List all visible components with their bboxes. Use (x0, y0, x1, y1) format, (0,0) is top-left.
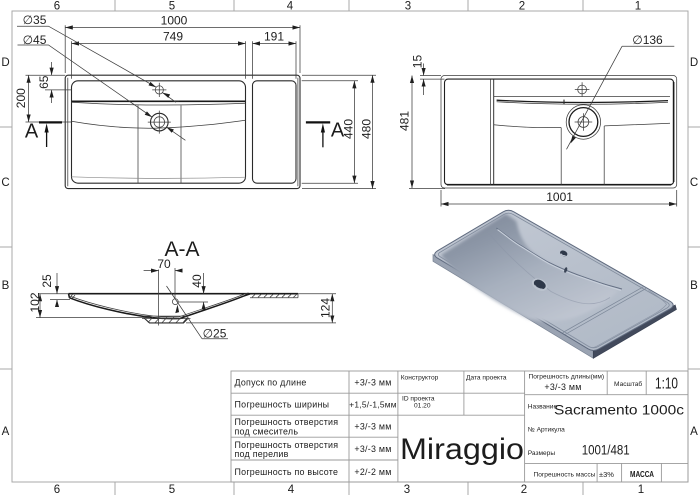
svg-text:Масштаб: Масштаб (614, 380, 642, 388)
svg-text:B: B (690, 280, 698, 292)
svg-text:Допуск по длине: Допуск по длине (235, 378, 307, 388)
svg-text:200: 200 (14, 88, 28, 108)
svg-text:1:10: 1:10 (655, 376, 678, 393)
svg-text:D: D (690, 57, 698, 69)
svg-text:65: 65 (37, 75, 51, 89)
svg-text:70: 70 (157, 257, 171, 271)
svg-text:A: A (2, 426, 10, 438)
svg-text:Погрешность ширины: Погрешность ширины (235, 400, 330, 410)
svg-text:6: 6 (54, 484, 60, 495)
svg-text:5: 5 (169, 484, 175, 495)
svg-text:Miraggio: Miraggio (400, 433, 524, 466)
svg-text:3: 3 (404, 484, 410, 495)
svg-text:C: C (1, 177, 9, 189)
svg-text:C: C (690, 177, 698, 189)
svg-text:ID проекта: ID проекта (402, 396, 435, 403)
svg-text:1: 1 (635, 1, 641, 13)
svg-text:40: 40 (190, 274, 204, 288)
svg-text:1001/481: 1001/481 (582, 443, 630, 458)
svg-text:Погрешность длины(мм): Погрешность длины(мм) (529, 374, 605, 381)
svg-text:3: 3 (405, 1, 411, 13)
svg-text:№ Артикула: № Артикула (528, 427, 565, 434)
svg-text:1000: 1000 (161, 14, 188, 28)
svg-text:25: 25 (40, 274, 54, 288)
svg-text:+3/-3 мм: +3/-3 мм (354, 444, 391, 454)
svg-text:A: A (690, 426, 698, 438)
svg-text:под перелив: под перелив (235, 449, 289, 459)
svg-text:1001: 1001 (546, 190, 573, 204)
svg-text:+3/-3 мм: +3/-3 мм (354, 378, 391, 388)
svg-text:+2/-2 мм: +2/-2 мм (354, 467, 391, 477)
svg-text:440: 440 (342, 119, 356, 139)
svg-text:15: 15 (411, 55, 425, 69)
svg-text:480: 480 (360, 119, 374, 139)
svg-text:2: 2 (519, 1, 525, 13)
svg-text:Размеры: Размеры (528, 450, 556, 457)
svg-text:Sacramento 1000c: Sacramento 1000c (554, 402, 684, 417)
svg-text:Погрешность массы: Погрешность массы (534, 472, 596, 479)
svg-text:6: 6 (54, 1, 60, 13)
svg-text:±3%: ±3% (599, 470, 614, 479)
svg-text:481: 481 (397, 111, 411, 131)
svg-text:МАССА: МАССА (630, 470, 654, 479)
svg-text:4: 4 (288, 484, 295, 495)
svg-text:191: 191 (264, 30, 284, 44)
svg-text:Конструктор: Конструктор (401, 374, 439, 381)
svg-text:1: 1 (638, 484, 644, 495)
svg-text:+1,5/-1,5мм: +1,5/-1,5мм (349, 400, 397, 410)
svg-text:D: D (1, 57, 9, 69)
svg-text:Погрешность по высоте: Погрешность по высоте (235, 467, 339, 477)
svg-text:2: 2 (521, 484, 527, 495)
svg-text:∅35: ∅35 (23, 13, 47, 27)
svg-text:5: 5 (169, 1, 175, 13)
svg-text:124: 124 (319, 298, 333, 318)
svg-text:749: 749 (163, 30, 183, 44)
svg-text:под смеситель: под смеситель (235, 427, 299, 437)
svg-text:Дата проекта: Дата проекта (466, 374, 507, 381)
svg-text:4: 4 (287, 1, 294, 13)
svg-text:B: B (2, 280, 10, 292)
svg-text:A: A (25, 121, 39, 143)
svg-text:∅136: ∅136 (632, 33, 663, 47)
svg-text:+3/-3 мм: +3/-3 мм (544, 382, 581, 392)
svg-text:102: 102 (28, 292, 42, 312)
svg-text:01.20: 01.20 (414, 403, 431, 410)
svg-text:+3/-3 мм: +3/-3 мм (354, 422, 391, 432)
